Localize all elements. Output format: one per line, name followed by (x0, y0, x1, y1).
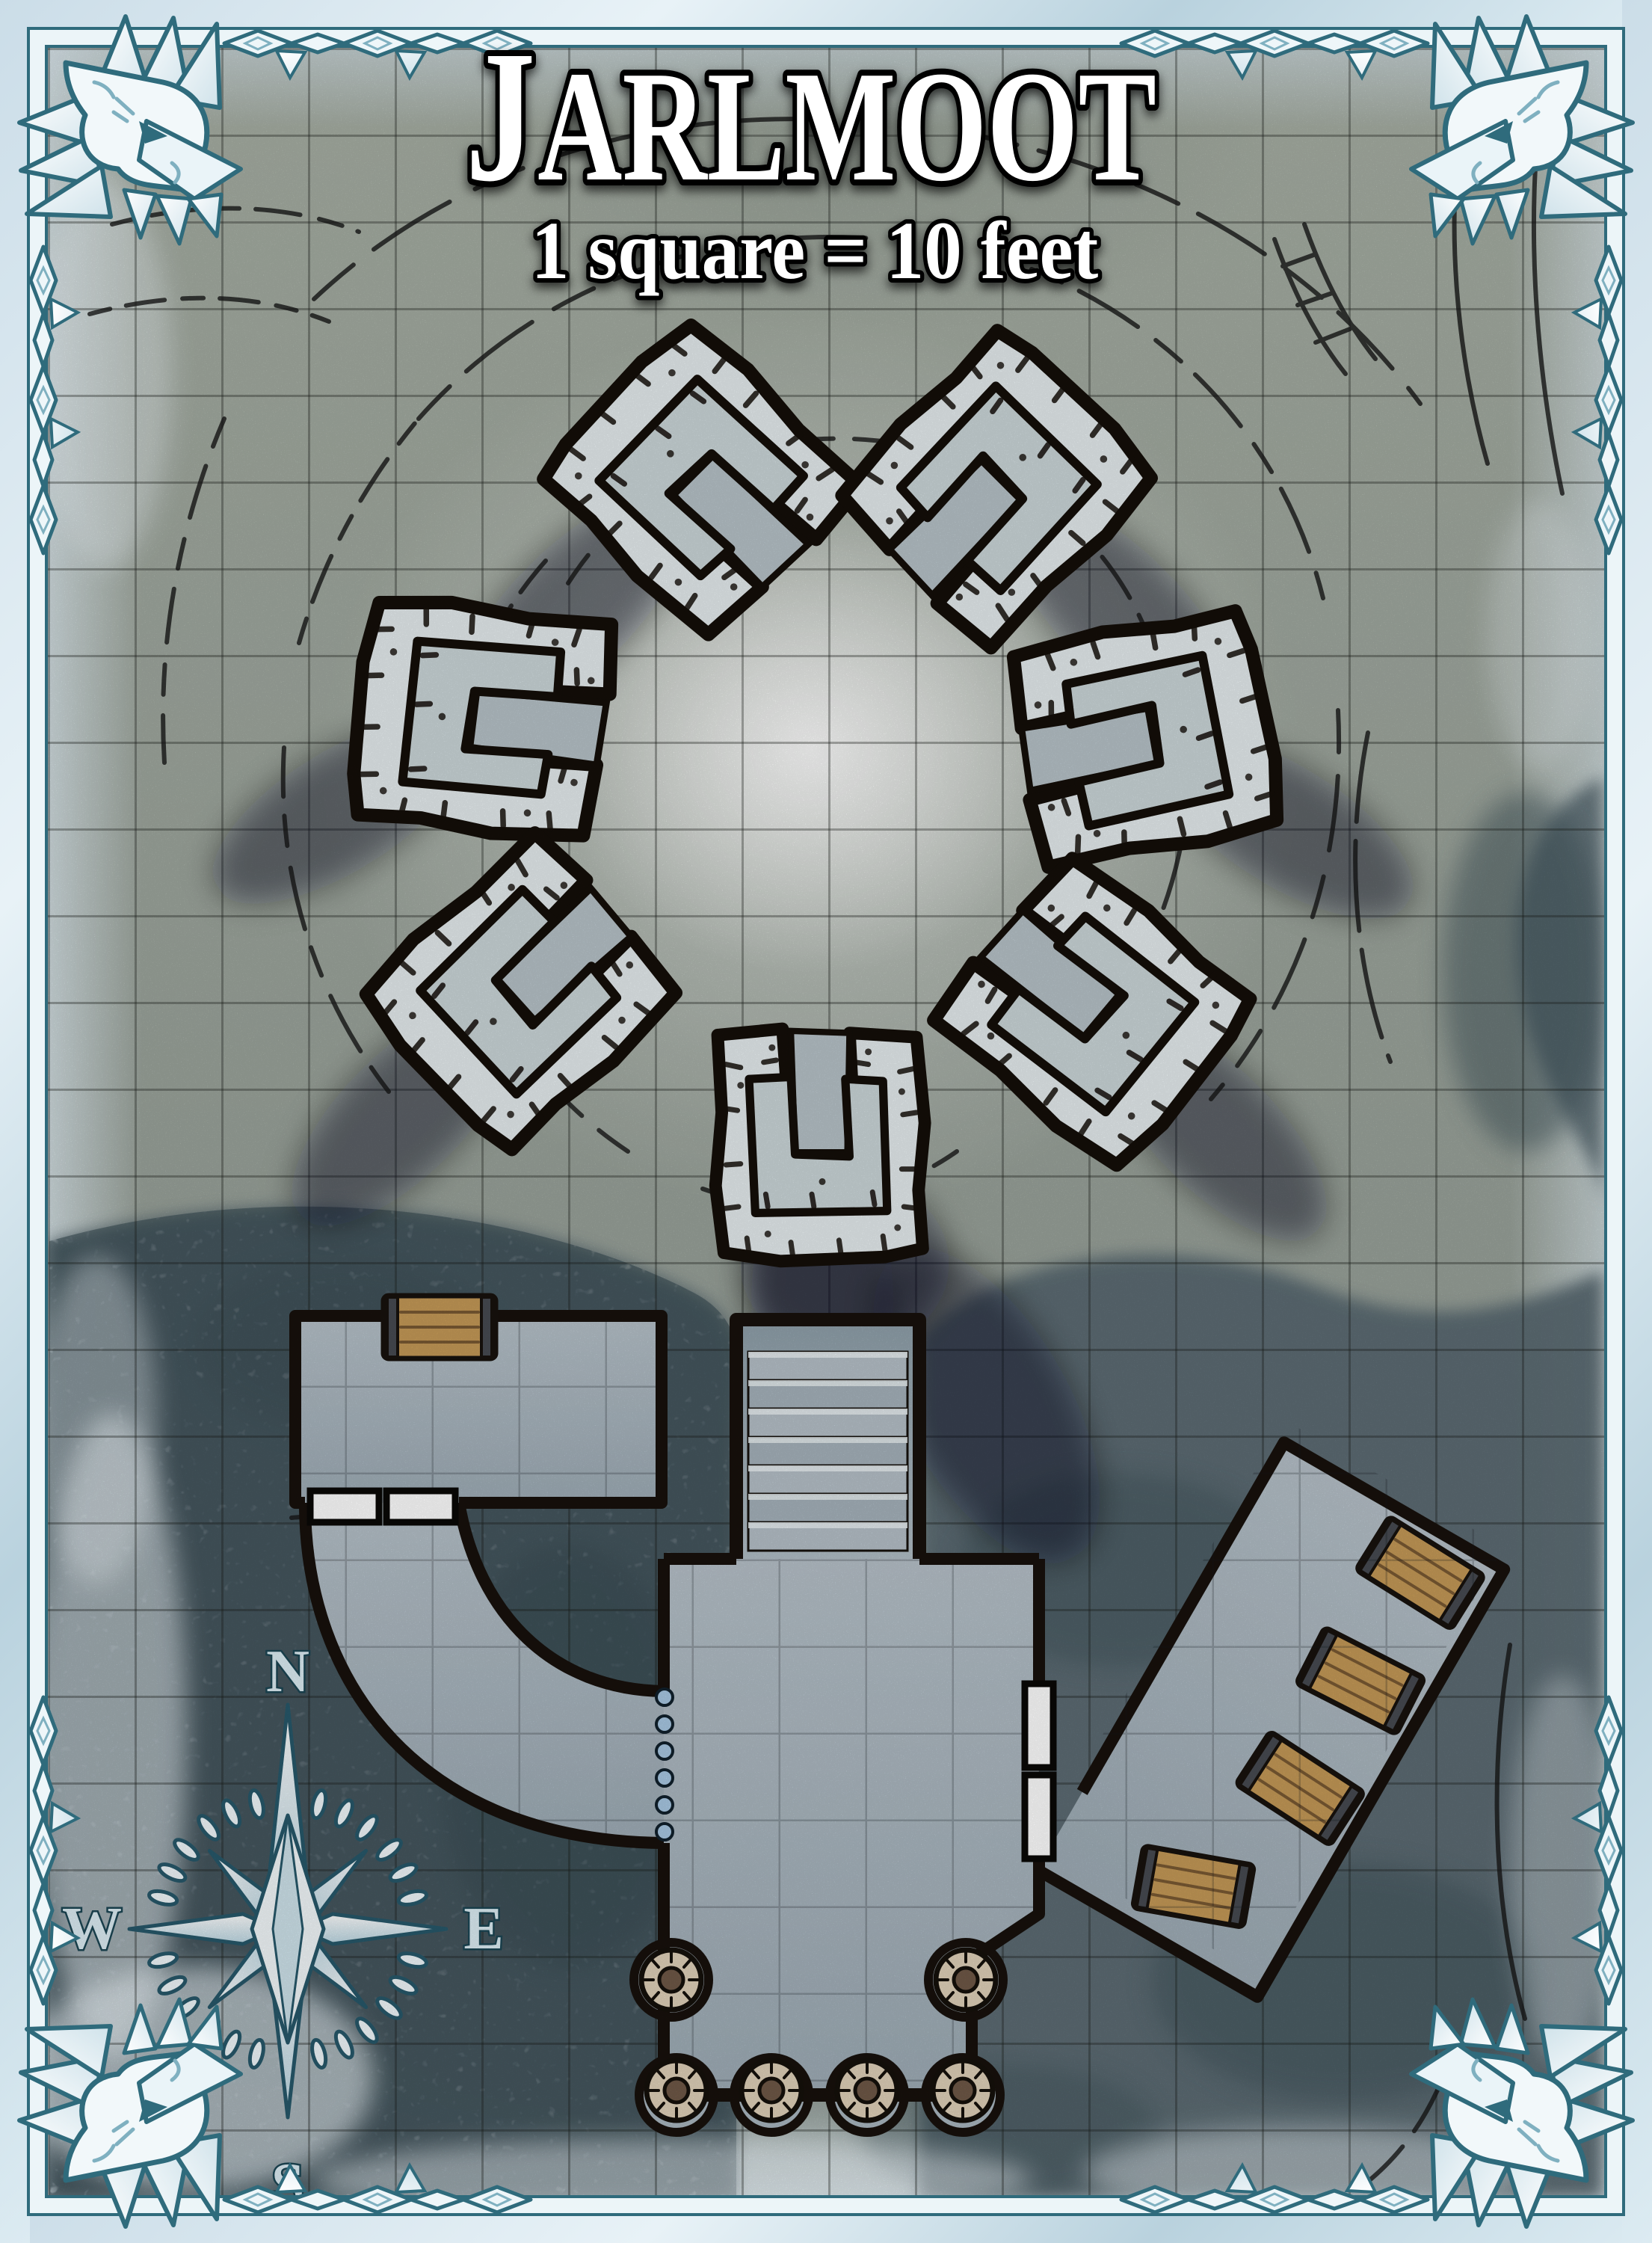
map-title: JARLMOOT (466, 11, 1156, 221)
title-block: JARLMOOT 1 square = 10 feet (0, 0, 1652, 359)
scale-label: 1 square = 10 feet (531, 205, 1098, 296)
ice-dragon-icon (1411, 1999, 1633, 2227)
jarlmoot-battle-map: N W E S (0, 0, 1652, 2243)
ice-dragon-icon (19, 1999, 241, 2227)
